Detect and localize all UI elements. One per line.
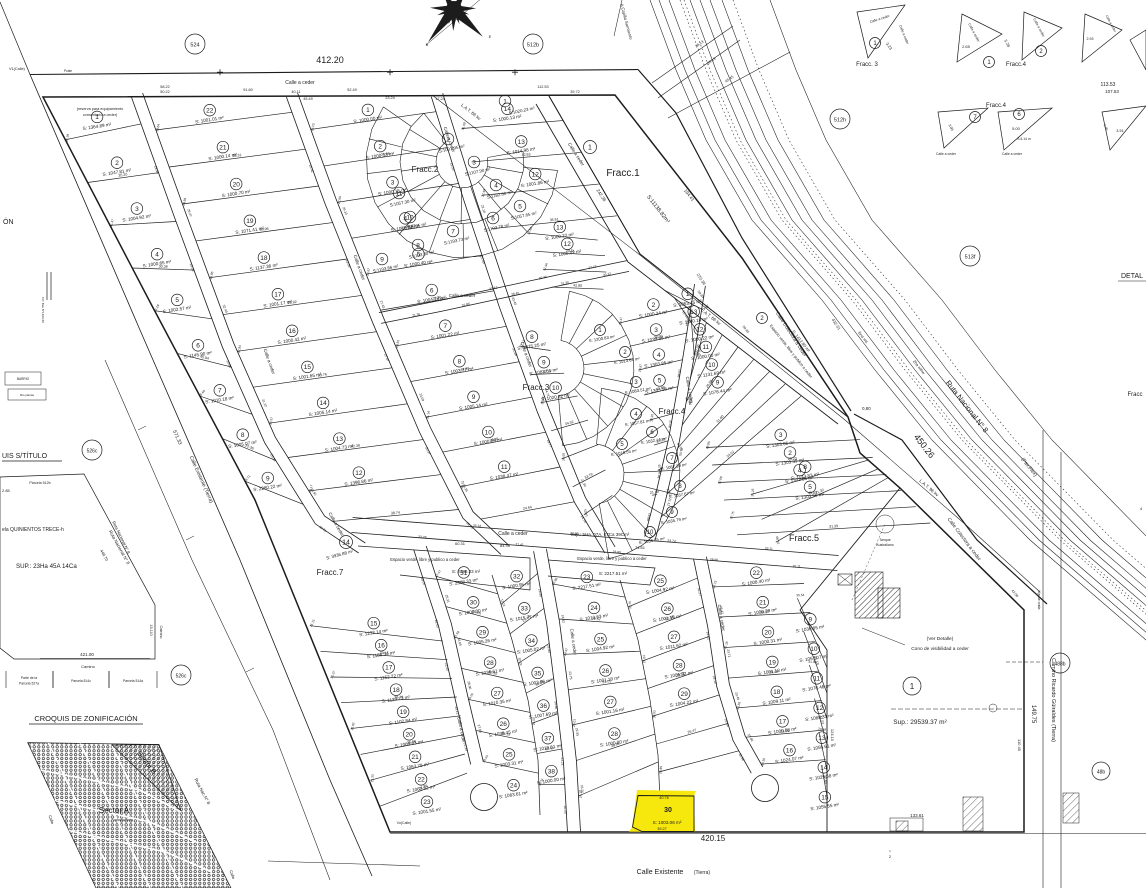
svg-text:3.51: 3.51 bbox=[1116, 129, 1123, 133]
svg-text:comunitario a ceder): comunitario a ceder) bbox=[83, 113, 118, 117]
svg-text:21.41: 21.41 bbox=[515, 542, 524, 547]
svg-text:13: 13 bbox=[818, 735, 826, 742]
svg-text:84.95: 84.95 bbox=[500, 543, 511, 548]
svg-text:9: 9 bbox=[266, 475, 270, 482]
svg-text:12: 12 bbox=[532, 171, 540, 178]
svg-text:526c: 526c bbox=[87, 449, 98, 455]
svg-text:20.45: 20.45 bbox=[563, 805, 567, 814]
svg-text:10: 10 bbox=[552, 385, 560, 392]
svg-text:CROQUIS DE ZONIFICACIÓN: CROQUIS DE ZONIFICACIÓN bbox=[34, 714, 137, 723]
svg-text:Camino: Camino bbox=[159, 625, 163, 638]
svg-text:Fracc: Fracc bbox=[1128, 392, 1143, 398]
svg-text:17: 17 bbox=[385, 665, 393, 672]
svg-text:25.11: 25.11 bbox=[792, 564, 800, 569]
svg-text:27: 27 bbox=[670, 634, 678, 641]
svg-text:S:4.14 m: S:4.14 m bbox=[1017, 137, 1031, 141]
svg-text:11: 11 bbox=[702, 344, 709, 351]
svg-text:27: 27 bbox=[494, 690, 502, 697]
svg-text:Sup.: 29539.37 m²: Sup.: 29539.37 m² bbox=[893, 719, 947, 726]
svg-text:420.15: 420.15 bbox=[701, 834, 726, 843]
svg-text:2: 2 bbox=[788, 450, 792, 457]
svg-text:91.60: 91.60 bbox=[243, 88, 253, 92]
svg-text:10: 10 bbox=[810, 646, 818, 653]
svg-text:25: 25 bbox=[657, 578, 665, 585]
svg-text:Calle a ceder: Calle a ceder bbox=[1002, 152, 1023, 156]
svg-text:2: 2 bbox=[378, 143, 382, 150]
svg-text:42.85: 42.85 bbox=[573, 283, 582, 287]
svg-text:2: 2 bbox=[652, 302, 656, 309]
svg-text:Vo(Calle): Vo(Calle) bbox=[397, 821, 411, 825]
svg-text:38: 38 bbox=[548, 768, 556, 775]
svg-text:1: 1 bbox=[503, 98, 507, 105]
svg-text:512h: 512h bbox=[834, 118, 846, 124]
svg-text:8: 8 bbox=[241, 432, 245, 439]
svg-text:Fracc.7: Fracc.7 bbox=[317, 568, 344, 577]
svg-text:10: 10 bbox=[406, 214, 414, 221]
svg-text:18: 18 bbox=[392, 687, 400, 694]
svg-text:20: 20 bbox=[233, 181, 241, 188]
svg-text:15: 15 bbox=[821, 794, 829, 801]
svg-text:149.75: 149.75 bbox=[1030, 705, 1036, 724]
svg-text:9: 9 bbox=[380, 256, 384, 263]
svg-text:30.54: 30.54 bbox=[796, 593, 804, 597]
svg-text:9: 9 bbox=[472, 394, 476, 401]
svg-text:24: 24 bbox=[590, 605, 598, 612]
svg-text:Fracc.5: Fracc.5 bbox=[789, 533, 819, 543]
svg-text:6: 6 bbox=[491, 215, 495, 222]
svg-text:110 45: 110 45 bbox=[1017, 739, 1022, 752]
svg-text:113.53: 113.53 bbox=[1101, 82, 1116, 88]
svg-text:16: 16 bbox=[378, 643, 386, 650]
svg-text:12: 12 bbox=[564, 241, 572, 248]
svg-text:3: 3 bbox=[779, 432, 783, 439]
svg-text:Espacio verde, libre y publico: Espacio verde, libre y publico a ceder bbox=[577, 556, 647, 561]
svg-text:(Tierra): (Tierra) bbox=[694, 870, 711, 876]
svg-text:28: 28 bbox=[486, 660, 494, 667]
svg-text:23.21: 23.21 bbox=[560, 757, 564, 766]
svg-text:3: 3 bbox=[472, 159, 476, 166]
svg-text:40.11: 40.11 bbox=[291, 90, 300, 94]
svg-text:21.30: 21.30 bbox=[370, 774, 375, 782]
svg-text:32.76: 32.76 bbox=[628, 601, 632, 609]
svg-text:Camino Ricardo Güiraldes (Tier: Camino Ricardo Güiraldes (Tierra) bbox=[1050, 658, 1056, 742]
svg-text:30.93: 30.93 bbox=[652, 710, 656, 718]
svg-text:16: 16 bbox=[786, 748, 794, 755]
svg-text:25.18: 25.18 bbox=[473, 524, 482, 529]
svg-text:B: B bbox=[426, 42, 429, 47]
svg-text:2: 2 bbox=[446, 136, 450, 143]
svg-text:24.04: 24.04 bbox=[642, 655, 646, 663]
svg-text:15: 15 bbox=[370, 620, 378, 627]
svg-text:F.P. Bas N°1466.82: F.P. Bas N°1466.82 bbox=[41, 297, 45, 323]
svg-text:1: 1 bbox=[686, 291, 690, 298]
svg-text:39.72: 39.72 bbox=[570, 90, 580, 94]
svg-text:12: 12 bbox=[696, 327, 704, 334]
svg-text:2.93: 2.93 bbox=[1087, 37, 1094, 41]
svg-text:Calle a ceder: Calle a ceder bbox=[498, 531, 528, 537]
svg-text:33: 33 bbox=[521, 606, 529, 613]
svg-text:5: 5 bbox=[518, 203, 522, 210]
svg-text:37: 37 bbox=[544, 736, 552, 743]
svg-text:6: 6 bbox=[430, 287, 434, 294]
svg-text:19: 19 bbox=[246, 218, 254, 225]
svg-text:Tanque: Tanque bbox=[879, 538, 891, 542]
svg-text:25: 25 bbox=[505, 752, 513, 759]
svg-text:1: 1 bbox=[366, 107, 370, 114]
svg-text:38.74: 38.74 bbox=[391, 511, 400, 516]
svg-text:Fracc.4: Fracc.4 bbox=[1006, 62, 1027, 68]
svg-text:22: 22 bbox=[417, 777, 425, 784]
svg-text:526c: 526c bbox=[176, 674, 187, 680]
svg-text:13: 13 bbox=[518, 139, 526, 146]
svg-text:107.53: 107.53 bbox=[1105, 89, 1119, 94]
svg-text:(reserva para equipamiento: (reserva para equipamiento bbox=[77, 107, 123, 111]
svg-text:Calle a ceder: Calle a ceder bbox=[285, 80, 315, 86]
svg-text:26: 26 bbox=[500, 721, 508, 728]
svg-text:27: 27 bbox=[607, 699, 615, 706]
svg-text:V1(Calle): V1(Calle) bbox=[9, 67, 26, 71]
svg-text:Fracc.2: Fracc.2 bbox=[412, 165, 439, 174]
svg-text:21: 21 bbox=[759, 600, 767, 607]
svg-text:0,80: 0,80 bbox=[862, 406, 871, 411]
svg-text:31: 31 bbox=[460, 570, 468, 577]
svg-text:23: 23 bbox=[423, 799, 431, 806]
svg-text:Fracc.4: Fracc.4 bbox=[659, 407, 686, 416]
svg-text:412.20: 412.20 bbox=[316, 55, 344, 65]
svg-text:5.00: 5.00 bbox=[1012, 126, 1021, 131]
svg-text:Calle a ceder: Calle a ceder bbox=[449, 293, 476, 298]
svg-text:3: 3 bbox=[654, 327, 658, 334]
svg-text:60.31: 60.31 bbox=[455, 541, 466, 546]
svg-text:Australiano: Australiano bbox=[876, 543, 894, 547]
svg-text:17: 17 bbox=[274, 292, 282, 299]
svg-text:10: 10 bbox=[485, 429, 493, 436]
svg-text:24: 24 bbox=[510, 783, 518, 790]
svg-text:28.10: 28.10 bbox=[578, 790, 582, 798]
svg-text:18: 18 bbox=[773, 689, 781, 696]
svg-text:29.68: 29.68 bbox=[561, 453, 565, 461]
svg-text:8: 8 bbox=[416, 242, 420, 249]
svg-text:14: 14 bbox=[342, 540, 350, 547]
svg-text:8: 8 bbox=[530, 334, 534, 341]
svg-text:12: 12 bbox=[355, 470, 363, 477]
svg-text:28.90: 28.90 bbox=[710, 557, 719, 562]
svg-text:26.25: 26.25 bbox=[751, 488, 756, 496]
svg-text:11: 11 bbox=[501, 464, 508, 471]
svg-text:21: 21 bbox=[219, 144, 227, 151]
svg-text:17.24: 17.24 bbox=[435, 97, 445, 101]
svg-text:20.85: 20.85 bbox=[658, 766, 663, 775]
svg-text:33.11: 33.11 bbox=[765, 546, 773, 551]
svg-text:36: 36 bbox=[540, 703, 548, 710]
svg-text:31.39: 31.39 bbox=[829, 524, 838, 529]
svg-text:10: 10 bbox=[708, 362, 716, 369]
svg-text:8: 8 bbox=[803, 464, 807, 471]
svg-text:50.22: 50.22 bbox=[160, 90, 170, 94]
svg-text:Parcela 512b: Parcela 512b bbox=[29, 481, 50, 485]
svg-text:21: 21 bbox=[411, 754, 419, 761]
svg-text:7: 7 bbox=[443, 323, 447, 330]
svg-text:S: 1003.06 m²: S: 1003.06 m² bbox=[653, 820, 682, 825]
svg-text:13: 13 bbox=[556, 224, 564, 231]
svg-text:Fracc.1: Fracc.1 bbox=[606, 168, 640, 179]
svg-text:(Ver Detalle): (Ver Detalle) bbox=[927, 636, 954, 642]
svg-text:9: 9 bbox=[808, 617, 812, 624]
svg-text:17: 17 bbox=[779, 719, 787, 726]
svg-text:15.110: 15.110 bbox=[149, 624, 153, 635]
svg-text:Calle Existente: Calle Existente bbox=[637, 869, 684, 876]
svg-text:Sector A: Sector A bbox=[99, 806, 130, 815]
svg-text:26: 26 bbox=[602, 668, 610, 675]
svg-text:28: 28 bbox=[611, 731, 619, 738]
svg-text:23.74: 23.74 bbox=[667, 539, 676, 544]
svg-text:26: 26 bbox=[664, 606, 672, 613]
svg-text:45.49: 45.49 bbox=[303, 97, 313, 101]
svg-text:Sup.: 5Ha. 07A. 07Ca 39Cm²: Sup.: 5Ha. 07A. 07Ca 39Cm² bbox=[571, 532, 630, 537]
svg-text:9: 9 bbox=[542, 360, 546, 367]
svg-text:1: 1 bbox=[588, 145, 592, 152]
svg-text:29: 29 bbox=[681, 691, 689, 698]
svg-text:3: 3 bbox=[135, 206, 139, 213]
svg-text:29: 29 bbox=[479, 630, 487, 637]
svg-text:28: 28 bbox=[675, 663, 683, 670]
svg-text:DETAL: DETAL bbox=[1121, 273, 1143, 280]
svg-text:22: 22 bbox=[206, 108, 214, 115]
svg-text:E: E bbox=[489, 34, 492, 39]
svg-text:13: 13 bbox=[690, 309, 698, 316]
svg-text:Fracc. 3: Fracc. 3 bbox=[856, 62, 878, 68]
svg-text:22: 22 bbox=[753, 570, 761, 577]
svg-text:19: 19 bbox=[400, 709, 408, 716]
svg-text:52.49: 52.49 bbox=[347, 88, 357, 92]
svg-text:513f: 513f bbox=[965, 255, 976, 261]
svg-text:18: 18 bbox=[260, 255, 268, 262]
svg-text:23.89: 23.89 bbox=[613, 550, 622, 555]
svg-text:2.85: 2.85 bbox=[2, 488, 11, 493]
svg-text:11: 11 bbox=[396, 190, 403, 197]
svg-text:UIS S/TÍTULO: UIS S/TÍTULO bbox=[2, 451, 48, 460]
svg-text:Poste: Poste bbox=[64, 69, 72, 73]
svg-text:12: 12 bbox=[816, 705, 824, 712]
svg-text:Parcela 527a: Parcela 527a bbox=[19, 682, 39, 686]
svg-text:9: 9 bbox=[716, 380, 720, 387]
svg-text:5: 5 bbox=[658, 378, 662, 385]
svg-text:7: 7 bbox=[451, 228, 455, 235]
svg-text:30: 30 bbox=[470, 600, 478, 607]
svg-text:5: 5 bbox=[808, 484, 812, 491]
svg-text:4: 4 bbox=[494, 182, 498, 189]
svg-text:16: 16 bbox=[288, 328, 296, 335]
svg-text:11: 11 bbox=[813, 676, 820, 683]
svg-text:ela QUINIENTOS TRECE-h: ela QUINIENTOS TRECE-h bbox=[2, 527, 64, 533]
svg-text:23: 23 bbox=[583, 574, 591, 581]
svg-text:4: 4 bbox=[155, 252, 159, 259]
svg-text:34: 34 bbox=[528, 638, 536, 645]
svg-text:3: 3 bbox=[391, 180, 395, 187]
svg-text:15: 15 bbox=[304, 364, 312, 371]
svg-text:Fracc.4: Fracc.4 bbox=[986, 103, 1007, 109]
svg-text:8: 8 bbox=[458, 359, 462, 366]
svg-text:10: 10 bbox=[647, 530, 654, 536]
svg-text:Uje de onda: Uje de onda bbox=[1037, 591, 1041, 610]
svg-text:58.22: 58.22 bbox=[160, 85, 170, 89]
svg-text:BARRIO: BARRIO bbox=[17, 377, 30, 381]
svg-text:Parte de la: Parte de la bbox=[21, 676, 38, 680]
svg-text:7: 7 bbox=[218, 388, 222, 395]
svg-text:5: 5 bbox=[175, 297, 179, 304]
svg-text:6: 6 bbox=[196, 343, 200, 350]
svg-text:74.61: 74.61 bbox=[635, 545, 646, 550]
svg-text:19: 19 bbox=[769, 659, 777, 666]
svg-text:Fracc.3: Fracc.3 bbox=[523, 383, 550, 392]
svg-text:Parcela 514c: Parcela 514c bbox=[71, 679, 91, 683]
svg-text:13: 13 bbox=[336, 436, 344, 443]
svg-text:SUP.: 23Ha 45A 14Ca: SUP.: 23Ha 45A 14Ca bbox=[16, 563, 77, 570]
svg-text:Espacio verde, libre y publico: Espacio verde, libre y publico a ceder bbox=[390, 557, 460, 562]
svg-text:32.20: 32.20 bbox=[650, 413, 655, 422]
svg-text:14: 14 bbox=[319, 400, 327, 407]
svg-text:2: 2 bbox=[115, 160, 119, 167]
svg-text:20: 20 bbox=[764, 629, 772, 636]
svg-text:23.24: 23.24 bbox=[385, 96, 395, 100]
svg-text:ÓN: ÓN bbox=[3, 217, 14, 226]
svg-text:Cono de visibilidad a ceder: Cono de visibilidad a ceder bbox=[911, 646, 969, 652]
svg-text:133.61: 133.61 bbox=[910, 813, 924, 818]
svg-text:112.53: 112.53 bbox=[537, 85, 548, 89]
svg-text:25: 25 bbox=[597, 636, 605, 643]
svg-text:524: 524 bbox=[190, 43, 199, 49]
svg-text:Calle a ceder: Calle a ceder bbox=[936, 152, 957, 156]
svg-text:512b: 512b bbox=[527, 43, 539, 49]
svg-text:48b: 48b bbox=[1097, 770, 1106, 776]
svg-text:421.00: 421.00 bbox=[80, 652, 94, 657]
svg-text:40.76: 40.76 bbox=[659, 796, 669, 800]
svg-text:124.10: 124.10 bbox=[830, 729, 835, 742]
svg-text:Rio plazas: Rio plazas bbox=[20, 393, 35, 397]
svg-text:Camino: Camino bbox=[81, 664, 96, 669]
svg-text:1: 1 bbox=[910, 682, 915, 691]
svg-text:32: 32 bbox=[513, 574, 521, 581]
svg-text:4: 4 bbox=[657, 352, 661, 359]
svg-text:30: 30 bbox=[664, 807, 672, 814]
svg-text:2.65: 2.65 bbox=[962, 44, 971, 49]
svg-text:S: 2217.51 m²: S: 2217.51 m² bbox=[599, 571, 628, 576]
svg-text:39.27: 39.27 bbox=[657, 827, 667, 831]
svg-text:Parcela 514a: Parcela 514a bbox=[123, 679, 143, 683]
svg-text:35: 35 bbox=[534, 670, 542, 677]
svg-text:23.26: 23.26 bbox=[418, 535, 427, 540]
svg-text:20: 20 bbox=[405, 732, 413, 739]
